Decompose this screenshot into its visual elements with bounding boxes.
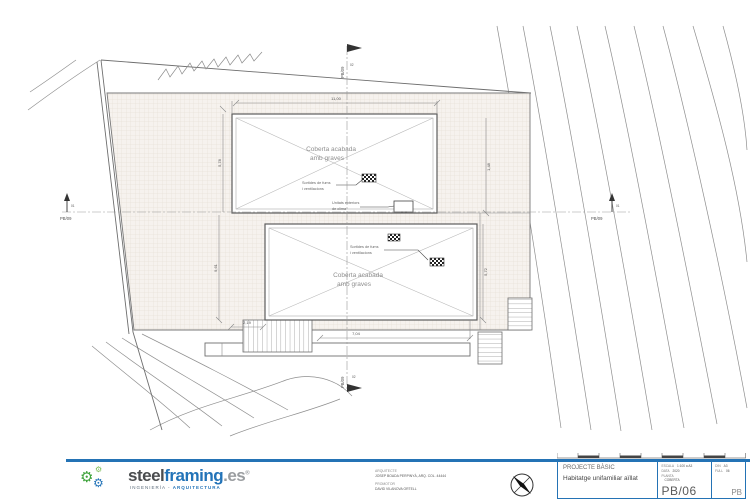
stairs-right-upper [508, 298, 532, 330]
gear-icon-small: ⚙ [95, 466, 102, 474]
section-marker-left: 01 PB/09 [60, 193, 75, 221]
sheet-code: PB/06 [661, 484, 696, 498]
section-num-bottom: 02 [352, 375, 356, 379]
plan-value: COBERTA [664, 478, 679, 482]
gear-icon-blue: ⚙ [93, 477, 104, 489]
corner-code: PB [731, 488, 742, 497]
title-block: PROJECTE BÀSIC Habitatge unifamiliar aïl… [557, 461, 746, 499]
section-num-right: 01 [616, 204, 620, 208]
section-marker-bottom: PB/09 02 [340, 375, 362, 392]
section-num-top: 02 [350, 63, 354, 67]
date-label: DATA [661, 469, 669, 473]
section-marker-right: 01 PB/09 [591, 193, 620, 221]
date-value: 2020 [672, 469, 679, 473]
dim-left-lower: 9,61 [213, 263, 218, 272]
dim-right-lower: 5,72 [483, 267, 488, 276]
section-ref-left: PB/09 [60, 216, 72, 221]
drawing-sheet: 01 PB/09 01 PB/09 PB/09 02 PB/09 02 [0, 0, 750, 500]
promoter-name: DAVID VILANOVA ORTELL [375, 487, 446, 492]
project-title: Habitatge unifamiliar aïllat [563, 475, 657, 482]
upper-building-roof [232, 114, 437, 213]
clima-unit-symbol [394, 201, 413, 212]
vent-label-lower-1: Sortides de fums [350, 245, 379, 249]
dim-right-upper: 1,48 [486, 162, 491, 171]
din-label: DIN [715, 464, 721, 468]
roof-label-upper-1: Coberta acabada [306, 146, 356, 153]
credits-block: ARQUITECTE JOSEP BOADA PERPINYÀ, ARQ. CO… [375, 466, 446, 492]
vent-symbol-upper [362, 174, 376, 182]
roof-label-lower-2: amb graves [337, 281, 372, 288]
stairs-right-lower [478, 332, 502, 364]
clima-label-1: Unitats exteriors [332, 201, 360, 205]
section-ref-top: PB/09 [340, 66, 345, 78]
title-block-sheet-info: ESCALA1:100 a A3 DATA2020 PLANTA COBERTA… [658, 462, 712, 498]
dim-top: 11,00 [331, 96, 341, 101]
clima-label-2: de clima [332, 207, 347, 211]
vent-label-upper-1: Sortides de fums [302, 181, 331, 185]
roof-plan-drawing: 01 PB/09 01 PB/09 PB/09 02 PB/09 02 [0, 0, 750, 460]
din-value: A3 [724, 464, 728, 468]
section-num-left: 01 [71, 204, 75, 208]
scale-label: ESCALA [661, 464, 674, 468]
dim-bottom-small: 2,19 [243, 320, 252, 325]
brand-tagline: INGENIERÍA - ARQUITECTURA [130, 485, 221, 490]
roof-label-lower-1: Coberta acabada [333, 272, 383, 279]
graphic-scale-bar [557, 452, 746, 459]
company-logo: ⚙ ⚙ ⚙ steelframing.es® INGENIERÍA - ARQU… [78, 466, 298, 500]
gear-icon-green: ⚙ [80, 470, 93, 485]
scale-value: 1:100 a A3 [677, 464, 692, 468]
vent-label-lower-2: i ventilacions [350, 251, 372, 255]
dim-bottom: 7,04 [352, 331, 361, 336]
vent-symbol-mid [388, 234, 400, 241]
dim-left-upper: 5,78 [217, 158, 222, 167]
stairs-bottom [243, 320, 312, 352]
section-marker-top: PB/09 02 [340, 44, 362, 78]
full-value: 06 [726, 469, 730, 473]
north-arrow [506, 471, 540, 500]
title-block-project: PROJECTE BÀSIC Habitatge unifamiliar aïl… [558, 462, 658, 498]
vent-label-upper-2: i ventilacions [302, 187, 324, 191]
section-ref-bottom: PB/09 [340, 376, 345, 388]
title-block-meta: DINA3 FULL06 PB [712, 462, 745, 498]
architect-name: JOSEP BOADA PERPINYÀ, ARQ. COL. 44444 [375, 474, 446, 479]
brand-name: steelframing.es® [128, 466, 249, 486]
project-type: PROJECTE BÀSIC [563, 465, 657, 471]
full-label: FULL [715, 469, 723, 473]
roof-label-upper-2: amb graves [310, 155, 345, 162]
plan-label: PLANTA [661, 474, 673, 478]
section-ref-right: PB/09 [591, 216, 603, 221]
vent-symbol-lower [430, 258, 444, 266]
